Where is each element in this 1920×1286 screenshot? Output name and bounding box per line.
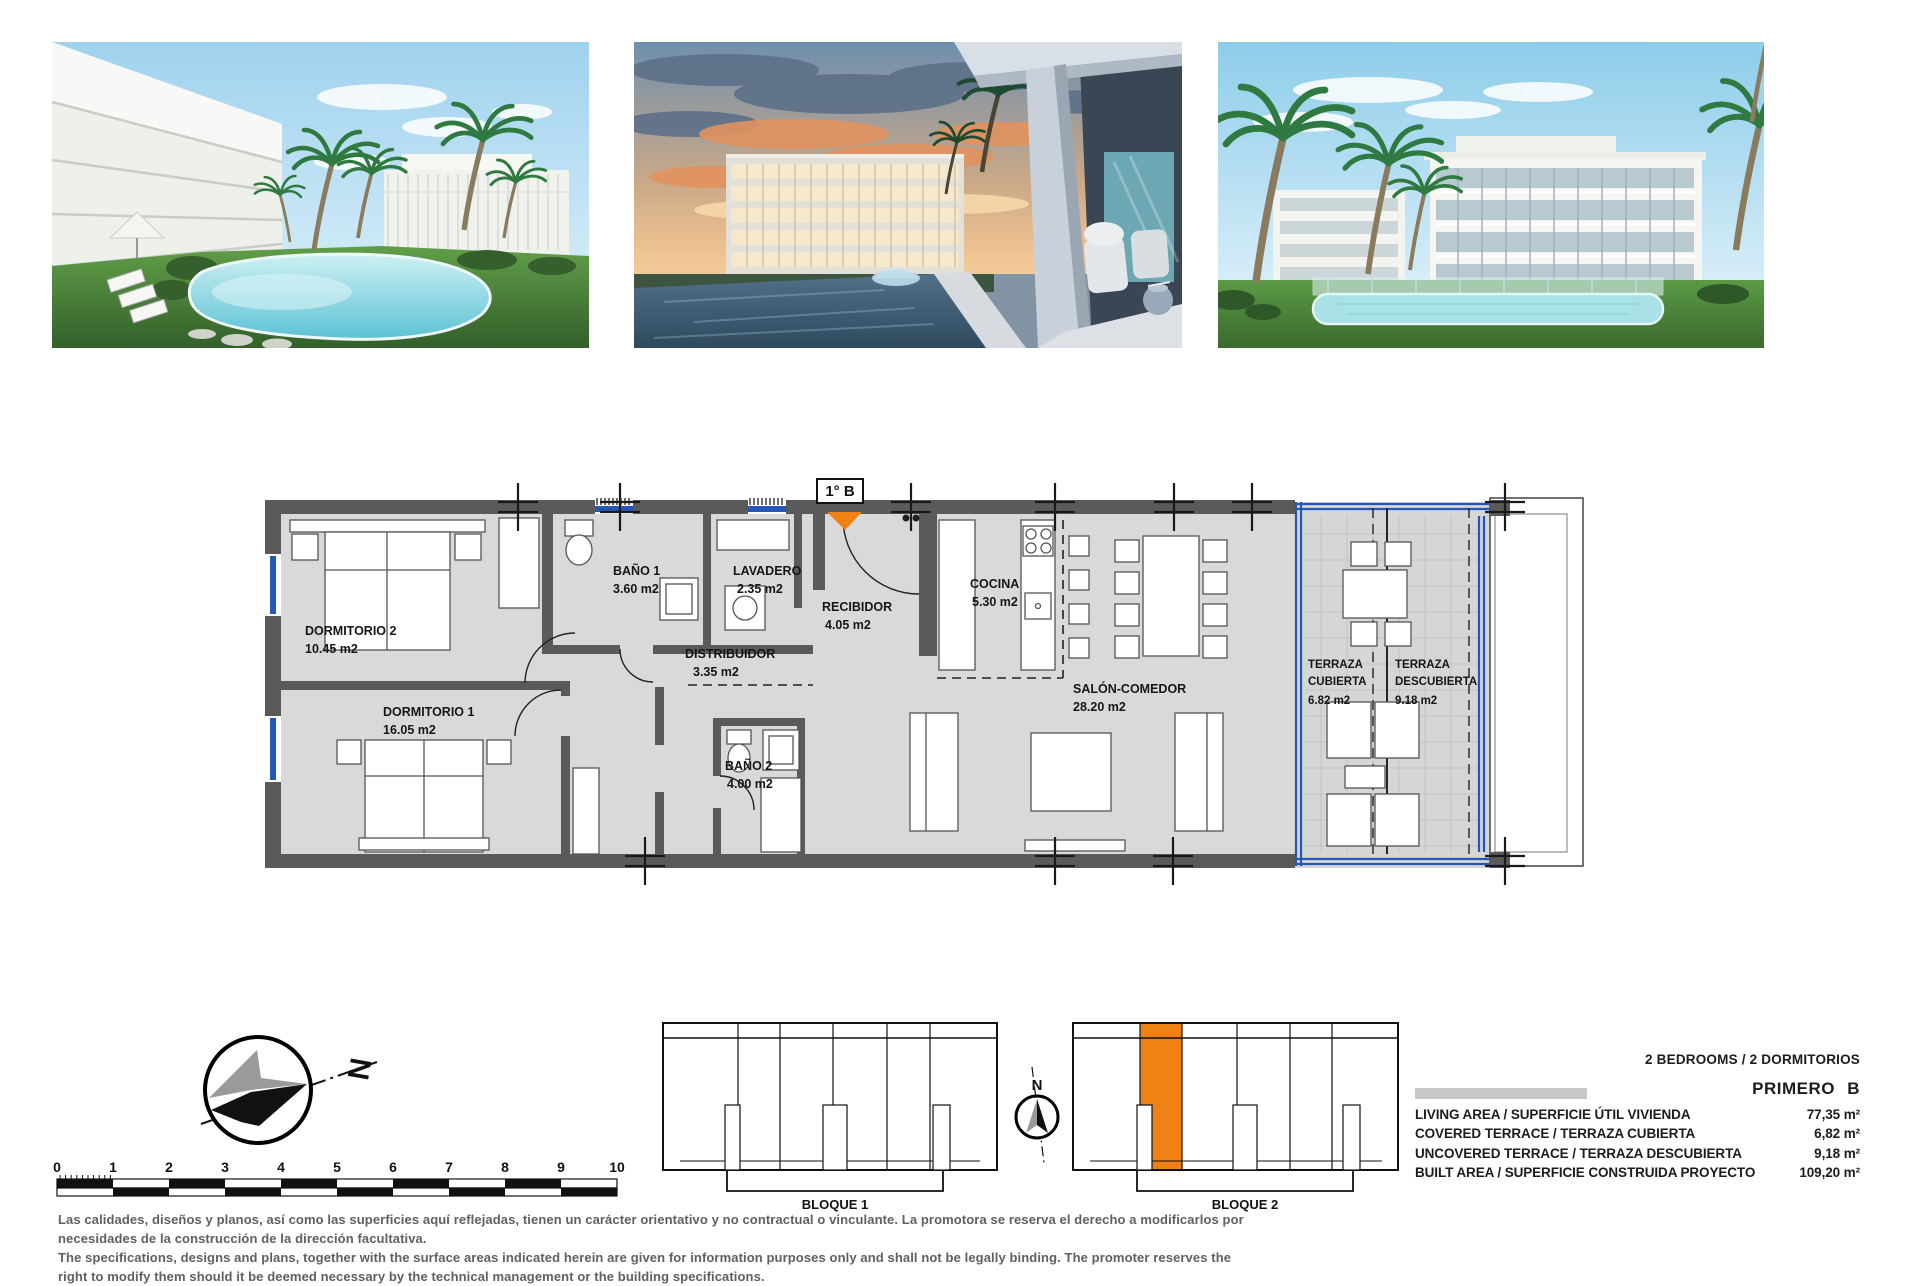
room-dormitorio-2: DORMITORIO 2 [305, 624, 396, 638]
unit-label: 1° B [825, 483, 855, 500]
bloque-2-diagram: BLOQUE 2 [1073, 1023, 1398, 1212]
room-bano-1: BAÑO 1 [613, 563, 660, 578]
window-top-2 [748, 498, 786, 514]
scale-bar: 0 1 2 3 4 5 6 7 8 9 10 [50, 1158, 630, 1204]
svg-text:4: 4 [277, 1159, 285, 1175]
svg-text:7: 7 [445, 1159, 453, 1175]
svg-text:1: 1 [109, 1159, 117, 1175]
svg-text:2.35 m2: 2.35 m2 [737, 582, 783, 596]
terrace-extension [1490, 498, 1583, 866]
spec-row-covered-terrace: COVERED TERRACE / TERRAZA CUBIERTA6,82 m… [1415, 1124, 1860, 1143]
room-distribuidor: DISTRIBUIDOR [685, 647, 775, 661]
svg-text:6: 6 [389, 1159, 397, 1175]
spec-row-living-area: LIVING AREA / SUPERFICIE ÚTIL VIVIENDA77… [1415, 1105, 1860, 1124]
svg-text:10.45 m2: 10.45 m2 [305, 642, 358, 656]
mini-north-label: N [1032, 1077, 1043, 1094]
svg-text:16.05 m2: 16.05 m2 [383, 723, 436, 737]
svg-text:28.20 m2: 28.20 m2 [1073, 700, 1126, 714]
svg-text:6.82 m2: 6.82 m2 [1308, 695, 1350, 707]
svg-text:2: 2 [165, 1159, 173, 1175]
svg-text:5.30 m2: 5.30 m2 [972, 595, 1018, 609]
photo-pool-garden-day [52, 42, 589, 348]
disclaimer: Las calidades, diseños y planos, así com… [58, 1210, 1368, 1286]
window-left-1 [265, 554, 281, 616]
pool [1313, 278, 1663, 324]
room-salon-comedor: SALÓN-COMEDOR [1073, 681, 1186, 696]
svg-text:10: 10 [609, 1159, 625, 1175]
block-key-diagrams: BLOQUE 1 N BLOQUE 2 [660, 1015, 1420, 1215]
disclaimer-es-line1: Las calidades, diseños y planos, así com… [58, 1210, 1368, 1229]
room-bano-2: BAÑO 2 [725, 758, 772, 773]
disclaimer-es-line2: necesidades de la construcción de la dir… [58, 1229, 1368, 1248]
svg-text:9: 9 [557, 1159, 565, 1175]
svg-text:CUBIERTA: CUBIERTA [1308, 676, 1367, 688]
bloque-1-diagram: BLOQUE 1 [663, 1023, 997, 1212]
svg-text:4.05 m2: 4.05 m2 [825, 618, 871, 632]
svg-text:8: 8 [501, 1159, 509, 1175]
north-label: N [341, 1055, 377, 1082]
spec-row-uncovered-terrace: UNCOVERED TERRACE / TERRAZA DESCUBIERTA9… [1415, 1144, 1860, 1163]
svg-text:0: 0 [53, 1159, 61, 1175]
svg-text:5: 5 [333, 1159, 341, 1175]
room-lavadero: LAVADERO [733, 564, 802, 578]
building-left [1273, 190, 1405, 288]
building-dusk [726, 154, 964, 276]
spec-header: 2 BEDROOMS / 2 DORMITORIOS [1405, 1052, 1870, 1067]
floor-plan: 1° B DORMITORIO 2 10.45 m2 DORMITORIO 1 … [265, 478, 1610, 898]
disclaimer-en-line2: right to modify them should it be deemed… [58, 1267, 1368, 1286]
room-cocina: COCINA [970, 577, 1019, 591]
room-dormitorio-1: DORMITORIO 1 [383, 705, 474, 719]
photo-building-pool-day [1218, 42, 1764, 348]
svg-text:3.60 m2: 3.60 m2 [613, 582, 659, 596]
svg-text:3.35 m2: 3.35 m2 [693, 665, 739, 679]
spec-table: 2 BEDROOMS / 2 DORMITORIOS PRIMERO B LIV… [1405, 1052, 1870, 1197]
photo-terrace-sunset [634, 42, 1182, 348]
compass-rose: N [195, 1028, 395, 1153]
svg-text:3: 3 [221, 1159, 229, 1175]
spec-row-built-area: BUILT AREA / SUPERFICIE CONSTRUIDA PROYE… [1415, 1163, 1860, 1182]
redacted-bar [1415, 1088, 1587, 1099]
svg-text:9.18 m2: 9.18 m2 [1395, 695, 1437, 707]
window-left-2 [265, 716, 281, 782]
room-terraza-descubierta: TERRAZA [1395, 659, 1450, 671]
room-recibidor: RECIBIDOR [822, 600, 892, 614]
svg-text:DESCUBIERTA: DESCUBIERTA [1395, 676, 1477, 688]
svg-text:4.00 m2: 4.00 m2 [727, 777, 773, 791]
mini-compass: N [1016, 1067, 1058, 1163]
room-terraza-cubierta: TERRAZA [1308, 659, 1363, 671]
disclaimer-en-line1: The specifications, designs and plans, t… [58, 1248, 1368, 1267]
